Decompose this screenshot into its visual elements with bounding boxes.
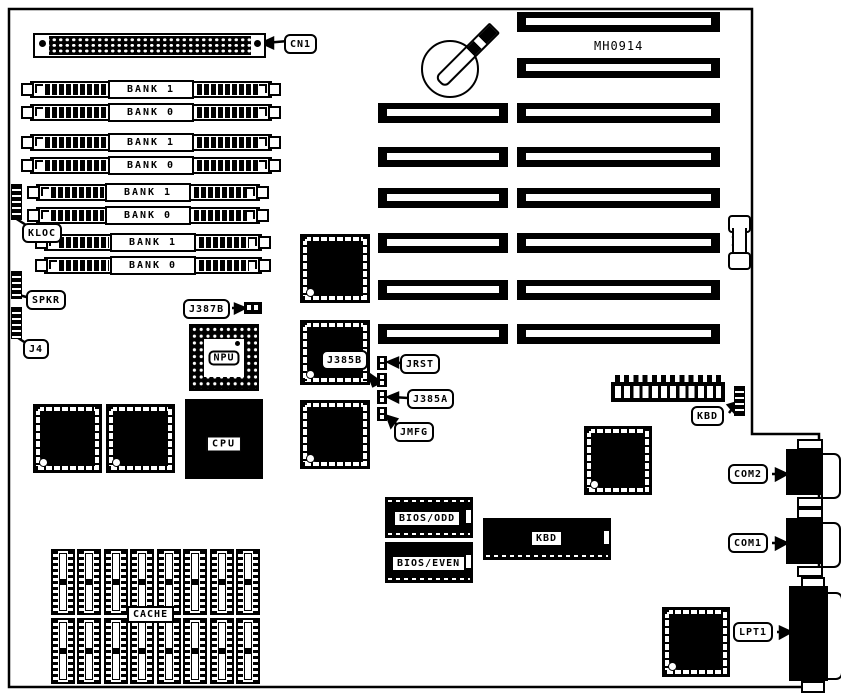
isa-slot-segment <box>378 147 508 167</box>
cache-socket-slot <box>112 553 120 611</box>
pin1-dot <box>306 288 315 297</box>
simm-bank-label: BANK 0 <box>110 256 196 275</box>
com1-connector <box>786 518 823 564</box>
dip-notch <box>466 510 471 523</box>
jumper-block <box>377 373 387 387</box>
simm-corner-mark <box>32 106 42 119</box>
cache-socket-slot <box>165 622 173 680</box>
isa-slot-segment <box>517 188 720 208</box>
cache-socket-slot <box>218 622 226 680</box>
simm-socket: BANK 1 <box>36 184 260 201</box>
callout-cn1: CN1 <box>284 34 317 54</box>
cache-socket-slot <box>218 553 226 611</box>
dip-pin-row <box>486 555 608 557</box>
simm-end-tab <box>268 106 281 119</box>
simm-pin-field <box>43 107 107 118</box>
simm-pin-field <box>43 137 107 148</box>
isa-slot-segment <box>378 188 508 208</box>
dip-pin-row <box>388 578 470 580</box>
cache-dip-socket <box>236 549 260 615</box>
cache-socket-slot <box>244 553 252 611</box>
cache-socket-slot <box>59 553 67 611</box>
isa-slot-segment <box>517 12 720 32</box>
simm-socket: BANK 0 <box>30 157 272 174</box>
isa-slot-segment <box>517 58 720 78</box>
simm-end-tab <box>258 236 271 249</box>
callout-com2: COM2 <box>728 464 768 484</box>
simm-pin-field <box>195 107 259 118</box>
pin1-dot <box>306 454 315 463</box>
simm-end-tab <box>268 136 281 149</box>
com2-dsub <box>821 453 841 499</box>
cache-label: CACHE <box>127 606 174 623</box>
simm-corner-mark <box>46 259 56 272</box>
simm-bank-label: BANK 1 <box>108 133 194 152</box>
kbd-pin-header <box>734 386 745 416</box>
isa-slot-segment <box>378 103 508 123</box>
jumper-block <box>377 356 387 370</box>
callout-kbd: KBD <box>691 406 724 426</box>
cache-socket-slot <box>138 622 146 680</box>
cache-socket-slot <box>112 622 120 680</box>
jumper-block <box>377 407 387 421</box>
simm-bank-label: BANK 0 <box>108 156 194 175</box>
simm-pin-field <box>49 210 104 221</box>
simm-corner-mark <box>38 209 48 222</box>
qfp-chip <box>33 404 102 473</box>
dip-notch <box>604 531 609 544</box>
simm-socket: BANK 1 <box>30 134 272 151</box>
board-model-text: MH0914 <box>594 39 643 53</box>
qfp-chip <box>300 234 370 303</box>
fuse-body <box>732 228 747 254</box>
simm-socket: BANK 1 <box>30 81 272 98</box>
com2-connector <box>786 449 823 495</box>
callout-kloc: KLOC <box>22 223 62 243</box>
simm-pin-field <box>57 260 109 271</box>
simm-socket: BANK 0 <box>36 207 260 224</box>
isa-slot-segment <box>517 233 720 253</box>
cache-socket-slot <box>138 553 146 611</box>
npu-pin1-dot <box>235 341 240 346</box>
io-bracket-tab <box>801 681 825 693</box>
qfp-chip <box>106 404 175 473</box>
dip-pin-row <box>388 500 470 502</box>
cache-dip-socket <box>236 618 260 684</box>
cache-dip-socket <box>183 618 207 684</box>
cache-dip-socket <box>210 618 234 684</box>
cn1-mount-hole <box>254 40 261 47</box>
pin1-dot <box>590 480 599 489</box>
callout-j385a: J385A <box>407 389 454 409</box>
simm-corner-mark <box>38 186 48 199</box>
dip-notch <box>466 555 471 568</box>
jumper-pin <box>247 305 251 310</box>
simm-pin-field <box>195 84 259 95</box>
qfp-chip <box>584 426 652 495</box>
power-connector-body <box>611 382 725 402</box>
cn1-pin-grid <box>49 36 251 55</box>
simm-corner-mark <box>32 159 42 172</box>
power-connector-cells <box>615 386 721 398</box>
simm-end-tab <box>256 209 269 222</box>
lpt1-connector <box>789 586 828 681</box>
cache-socket-slot <box>85 622 93 680</box>
fuse-cap <box>728 252 751 270</box>
isa-slot-segment <box>517 103 720 123</box>
npu-socket: NPU <box>189 324 259 391</box>
simm-end-tab <box>268 83 281 96</box>
cache-dip-socket <box>104 549 128 615</box>
callout-j387b: J387B <box>183 299 230 319</box>
simm-pin-field <box>195 160 259 171</box>
cache-socket-slot <box>191 622 199 680</box>
simm-bank-label: BANK 0 <box>108 103 194 122</box>
qfp-chip <box>662 607 730 677</box>
isa-slot-segment <box>378 280 508 300</box>
io-bracket-tab <box>797 497 823 508</box>
pin1-dot <box>306 370 315 379</box>
simm-pin-field <box>192 210 247 221</box>
simm-socket: BANK 0 <box>44 257 262 274</box>
isa-slot-segment <box>517 280 720 300</box>
npu-label: NPU <box>208 351 239 366</box>
isa-slot-segment <box>378 324 508 344</box>
simm-bank-label: BANK 1 <box>110 233 196 252</box>
simm-pin-field <box>43 160 107 171</box>
simm-corner-mark <box>32 83 42 96</box>
callout-com1: COM1 <box>728 533 768 553</box>
simm-socket: BANK 0 <box>30 104 272 121</box>
callout-spkr: SPKR <box>26 290 66 310</box>
simm-end-tab <box>258 259 271 272</box>
callout-lpt1: LPT1 <box>733 622 773 642</box>
spkr-pin-header <box>11 271 22 299</box>
j4-pin-header <box>11 307 22 339</box>
simm-pin-field <box>195 137 259 148</box>
cache-socket-slot <box>191 553 199 611</box>
cache-dip-socket <box>157 618 181 684</box>
cpu-label: CPU <box>207 436 241 451</box>
cache-socket-slot <box>165 553 173 611</box>
simm-bank-label: BANK 1 <box>108 80 194 99</box>
cn1-connector <box>33 33 266 58</box>
cpu-chip: CPU <box>185 399 263 479</box>
isa-slot-segment <box>517 147 720 167</box>
bios-odd-label: BIOS/ODD <box>393 510 461 527</box>
cache-socket-slot <box>85 553 93 611</box>
simm-bank-label: BANK 1 <box>105 183 191 202</box>
isa-slot-segment <box>517 324 720 344</box>
motherboard-diagram: MH0914 NPU CPU BIOS/ODD BIOS/EVEN KBD CA… <box>0 0 841 700</box>
simm-pin-field <box>192 187 247 198</box>
simm-pin-field <box>197 237 249 248</box>
simm-pin-field <box>49 187 104 198</box>
cache-socket-slot <box>59 622 67 680</box>
jumper-block <box>377 390 387 404</box>
pin1-dot <box>668 662 677 671</box>
dip-pin-row <box>388 533 470 535</box>
cache-socket-slot <box>244 622 252 680</box>
callout-jmfg: JMFG <box>394 422 434 442</box>
qfp-chip <box>300 400 370 469</box>
callout-j4: J4 <box>23 339 49 359</box>
cache-dip-socket <box>77 549 101 615</box>
simm-pin-field <box>43 84 107 95</box>
cache-dip-socket <box>210 549 234 615</box>
jumper-pin <box>254 305 258 310</box>
com1-dsub <box>821 522 841 568</box>
simm-end-tab <box>256 186 269 199</box>
isa-slot-segment <box>378 233 508 253</box>
simm-pin-field <box>197 260 249 271</box>
cache-dip-socket <box>130 618 154 684</box>
callout-j385b: J385B <box>321 350 368 370</box>
kloc-pin-header <box>11 184 22 220</box>
kbd-chip-label: KBD <box>530 530 563 547</box>
pin1-dot <box>39 458 48 467</box>
simm-pin-field <box>57 237 109 248</box>
bios-even-label: BIOS/EVEN <box>391 555 466 572</box>
cache-dip-socket <box>77 618 101 684</box>
simm-corner-mark <box>32 136 42 149</box>
cache-dip-socket <box>104 618 128 684</box>
io-bracket-tab <box>797 566 823 577</box>
simm-socket: BANK 1 <box>44 234 262 251</box>
callout-jrst: JRST <box>400 354 440 374</box>
cache-dip-socket <box>51 618 75 684</box>
simm-end-tab <box>268 159 281 172</box>
power-connector <box>611 375 725 402</box>
j387b-jumper <box>244 302 262 314</box>
cn1-mount-hole <box>39 40 46 47</box>
cache-dip-socket <box>183 549 207 615</box>
simm-bank-label: BANK 0 <box>105 206 191 225</box>
cache-dip-socket <box>51 549 75 615</box>
npu-socket-center: NPU <box>204 339 244 377</box>
pin1-dot <box>112 458 121 467</box>
